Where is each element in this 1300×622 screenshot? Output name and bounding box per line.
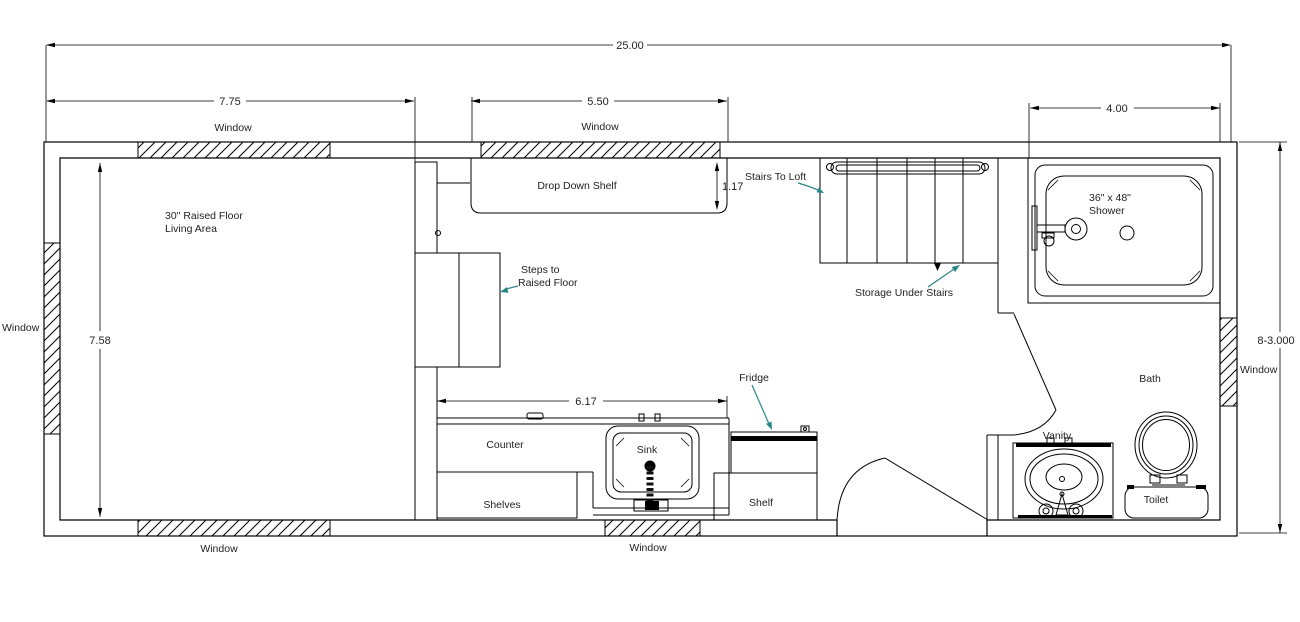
sink-label: Sink bbox=[637, 444, 658, 456]
floor-plan-canvas: Drop Down Shelf 1.17 bbox=[0, 0, 1300, 622]
window-bottom-mid bbox=[605, 520, 700, 536]
vanity: Vanity bbox=[1013, 430, 1113, 519]
shelves-cabinet: Shelves bbox=[437, 472, 577, 518]
raised-floor-steps bbox=[415, 162, 500, 520]
window-bottom-left-label: Window bbox=[200, 543, 238, 555]
entry-door bbox=[837, 458, 988, 520]
window-left-label: Window bbox=[2, 322, 40, 334]
fridge-leader bbox=[752, 385, 769, 424]
shower-drain bbox=[1120, 226, 1134, 240]
counter: Counter bbox=[437, 413, 729, 515]
dim-shower-width: 4.00 bbox=[1030, 103, 1220, 115]
window-bottom-left bbox=[138, 520, 330, 536]
shower-label: Shower bbox=[1089, 205, 1125, 217]
dim-shower-width-text: 4.00 bbox=[1106, 103, 1127, 115]
shower-size-label: 36" x 48" bbox=[1089, 192, 1131, 204]
steps-label-2: Raised Floor bbox=[518, 277, 578, 289]
leader-arrows bbox=[500, 183, 960, 430]
dimensions: 25.00 7.75 Window 5.50 Window 4.00 bbox=[46, 40, 1295, 533]
floor-plan-page: Drop Down Shelf 1.17 bbox=[0, 0, 1300, 622]
kitchen: Counter Shelves Sink bbox=[437, 413, 817, 520]
vanity-label: Vanity bbox=[1043, 430, 1072, 442]
dim-mid-window: 5.50 Window bbox=[471, 96, 727, 133]
window-top-mid-label: Window bbox=[581, 121, 619, 133]
bathroom-door bbox=[987, 314, 1056, 520]
window-top-left-label: Window bbox=[214, 122, 252, 134]
dim-mid-window-text: 5.50 bbox=[587, 96, 608, 108]
shower-head bbox=[1032, 206, 1087, 250]
stairs-to-loft-label: Stairs To Loft bbox=[745, 171, 806, 183]
drop-down-shelf-label: Drop Down Shelf bbox=[537, 180, 616, 192]
shelf-label: Shelf bbox=[749, 497, 773, 509]
dim-overall-width: 25.00 bbox=[46, 40, 1231, 52]
window-top-mid bbox=[481, 142, 720, 158]
toilet: Toilet bbox=[1125, 412, 1208, 518]
steps-label-1: Steps to bbox=[521, 264, 560, 276]
toilet-label: Toilet bbox=[1144, 494, 1169, 506]
window-right-label: Window bbox=[1240, 364, 1278, 376]
drop-down-shelf: Drop Down Shelf 1.17 bbox=[471, 158, 743, 213]
bathroom: Bath Vanity bbox=[1013, 373, 1208, 519]
fridge-label: Fridge bbox=[739, 372, 769, 384]
dim-overall-width-text: 25.00 bbox=[616, 40, 644, 52]
sink-cabinet: Sink bbox=[593, 414, 729, 515]
window-right bbox=[1220, 318, 1237, 406]
storage-under-stairs-label: Storage Under Stairs bbox=[855, 287, 953, 299]
living-area-label-2: Living Area bbox=[165, 223, 217, 235]
dim-shelf-depth: 1.17 bbox=[722, 181, 743, 193]
window-top-left bbox=[138, 142, 330, 158]
counter-label: Counter bbox=[486, 439, 524, 451]
dim-living-depth: 7.58 bbox=[89, 163, 110, 517]
shelves-label: Shelves bbox=[483, 499, 520, 511]
windows bbox=[44, 142, 1237, 536]
dim-overall-depth: 8-3.000 bbox=[1257, 142, 1294, 533]
dim-overall-depth-text: 8-3.000 bbox=[1257, 335, 1294, 347]
shower: 36" x 48" Shower bbox=[1028, 158, 1220, 303]
dim-counter-width: 6.17 bbox=[437, 396, 727, 408]
dim-living-depth-text: 7.58 bbox=[89, 335, 110, 347]
steps-box bbox=[415, 253, 500, 367]
window-bottom-mid-label: Window bbox=[629, 542, 667, 554]
window-left bbox=[44, 243, 60, 434]
storage-leader bbox=[928, 269, 954, 287]
bath-label: Bath bbox=[1139, 373, 1161, 385]
living-area-label-1: 30" Raised Floor bbox=[165, 210, 243, 222]
dim-left-window: 7.75 Window bbox=[46, 96, 414, 134]
exterior-walls bbox=[44, 142, 1237, 536]
steps-leader bbox=[506, 286, 518, 289]
dim-left-window-text: 7.75 bbox=[219, 96, 240, 108]
fridge bbox=[731, 426, 817, 473]
dim-counter-width-text: 6.17 bbox=[575, 396, 596, 408]
stairs-to-loft-leader bbox=[798, 183, 820, 191]
